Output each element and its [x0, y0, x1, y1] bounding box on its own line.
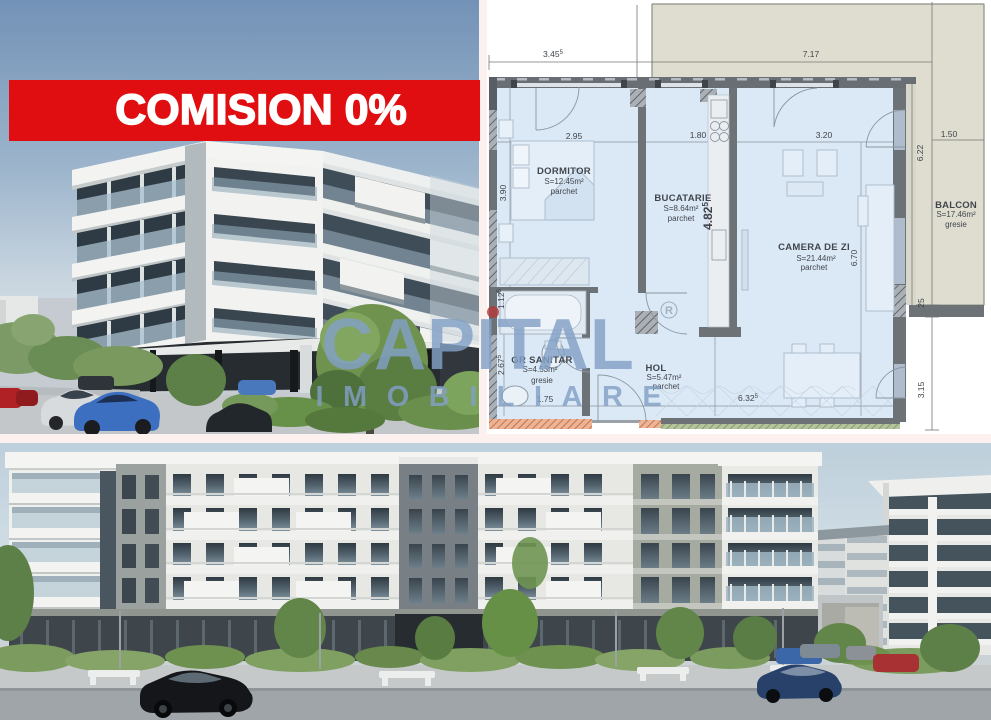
svg-text:3.20: 3.20	[816, 130, 833, 140]
svg-text:gresie: gresie	[945, 220, 967, 229]
svg-text:6.70: 6.70	[849, 249, 859, 266]
svg-text:CAMERA DE ZI: CAMERA DE ZI	[778, 242, 850, 253]
svg-text:S=8.64m²: S=8.64m²	[664, 204, 699, 213]
svg-text:1.80: 1.80	[690, 130, 707, 140]
svg-text:6.22: 6.22	[915, 144, 925, 161]
svg-text:3.455: 3.455	[543, 49, 564, 59]
svg-text:3.15: 3.15	[916, 381, 926, 398]
svg-text:3.90: 3.90	[498, 184, 508, 201]
svg-text:7.17: 7.17	[803, 49, 820, 59]
svg-text:2.95: 2.95	[566, 131, 583, 141]
svg-text:S=21.44m²: S=21.44m²	[796, 254, 836, 263]
svg-text:R: R	[665, 305, 673, 317]
svg-text:S=12.45m²: S=12.45m²	[544, 177, 584, 186]
svg-text:25: 25	[916, 298, 926, 308]
svg-text:DORMITOR: DORMITOR	[537, 166, 591, 177]
svg-text:parchet: parchet	[551, 187, 578, 196]
svg-text:parchet: parchet	[801, 263, 828, 272]
svg-text:parchet: parchet	[668, 214, 695, 223]
svg-text:1.50: 1.50	[941, 129, 958, 139]
svg-text:S=17.46m²: S=17.46m²	[936, 210, 976, 219]
